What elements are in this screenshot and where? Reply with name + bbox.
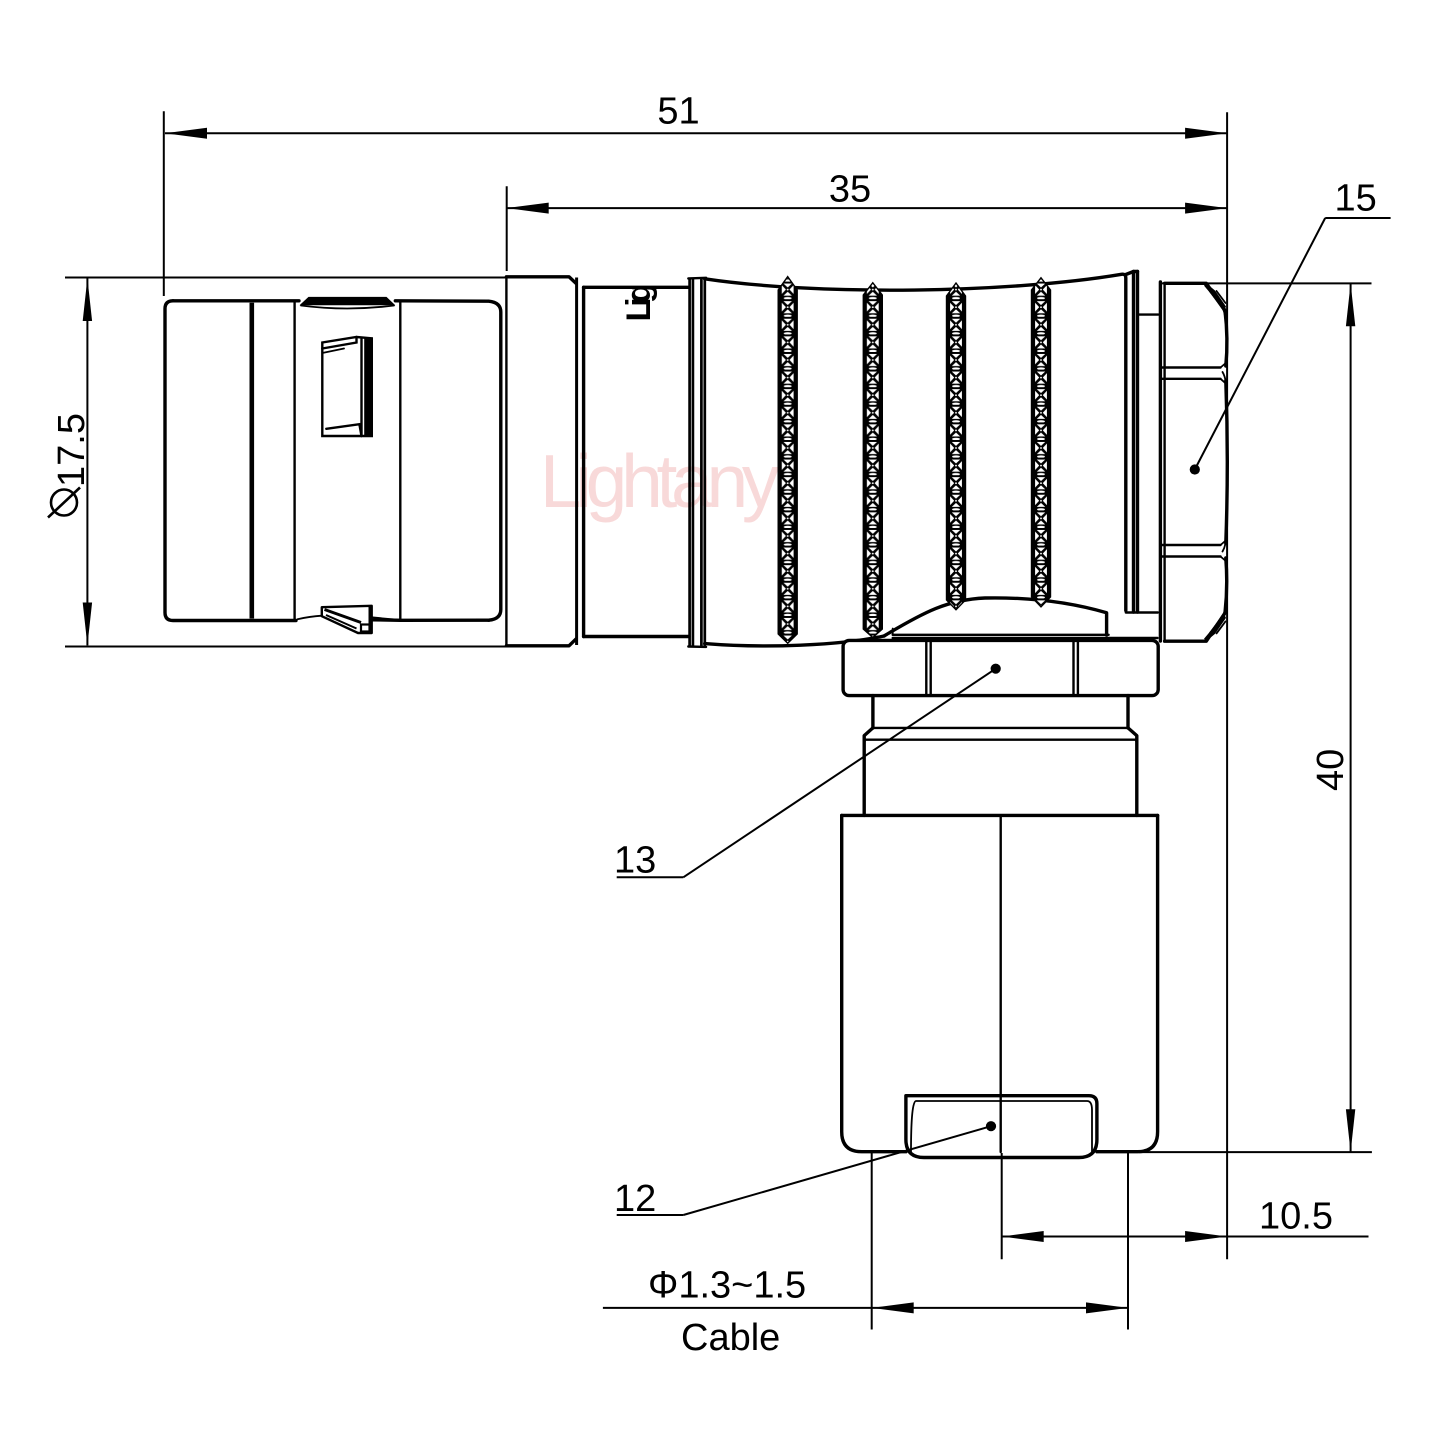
svg-text:15: 15 bbox=[1335, 178, 1377, 220]
svg-text:10.5: 10.5 bbox=[1259, 1196, 1333, 1238]
svg-text:12: 12 bbox=[614, 1178, 656, 1220]
svg-text:51: 51 bbox=[657, 91, 699, 133]
svg-text:Lig: Lig bbox=[620, 284, 658, 321]
svg-text:35: 35 bbox=[829, 169, 871, 211]
svg-text:17.5: 17.5 bbox=[51, 413, 93, 487]
svg-text:13: 13 bbox=[614, 840, 656, 882]
svg-text:Φ1.3~1.5: Φ1.3~1.5 bbox=[648, 1265, 806, 1307]
svg-text:40: 40 bbox=[1310, 749, 1352, 791]
svg-text:Cable: Cable bbox=[681, 1317, 780, 1359]
